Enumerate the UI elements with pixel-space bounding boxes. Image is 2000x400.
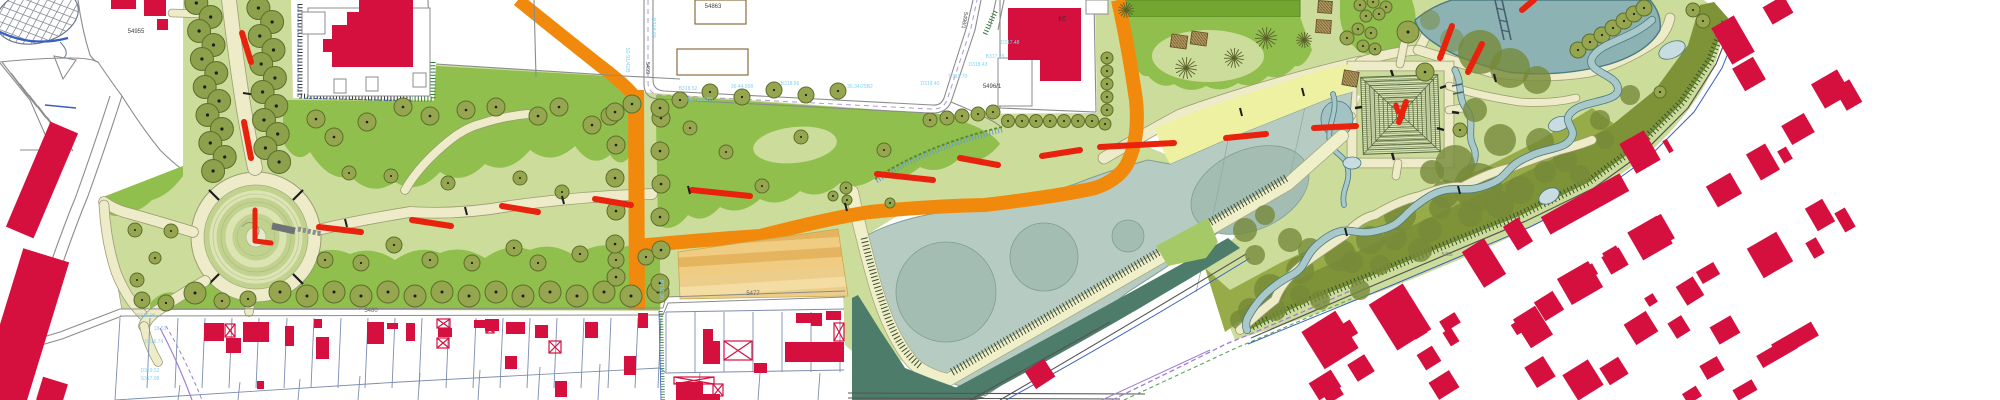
svg-text:55.70/25B5: 55.70/25B5: [687, 97, 713, 103]
svg-text:54863: 54863: [705, 4, 722, 10]
svg-text:5480: 5480: [364, 308, 378, 314]
svg-text:D318.40: D318.40: [921, 81, 940, 87]
svg-text:B317.28: B317.28: [986, 54, 1005, 60]
svg-text:B318.52: B318.52: [679, 86, 698, 92]
svg-text:18.53: 18.53: [154, 326, 167, 332]
svg-text:D318.99: D318.99: [137, 313, 156, 319]
svg-text:24: 24: [1058, 14, 1066, 21]
svg-text:50.91/42B: 50.91/42B: [624, 47, 630, 72]
svg-text:36.44.508: 36.44.508: [731, 84, 753, 90]
svg-text:5485: 5485: [1441, 252, 1452, 258]
svg-text:D318.43: D318.43: [969, 62, 988, 68]
svg-text:S316.74: S316.74: [145, 339, 164, 345]
svg-text:5496/1: 5496/1: [983, 84, 1002, 90]
svg-text:D319.70: D319.70: [949, 74, 968, 80]
svg-text:B318.55: B318.55: [650, 18, 656, 39]
svg-text:S317.08: S317.08: [141, 376, 160, 382]
svg-text:5477: 5477: [746, 291, 760, 297]
svg-text:D317.48: D317.48: [1001, 40, 1020, 46]
svg-text:D319.52: D319.52: [141, 368, 160, 374]
svg-text:5499: 5499: [644, 62, 650, 74]
svg-text:54955: 54955: [128, 29, 145, 35]
svg-text:B318.56: B318.56: [781, 81, 800, 87]
svg-text:36.34/25B2: 36.34/25B2: [847, 84, 873, 90]
svg-text:B316.99: B316.99: [658, 280, 664, 301]
